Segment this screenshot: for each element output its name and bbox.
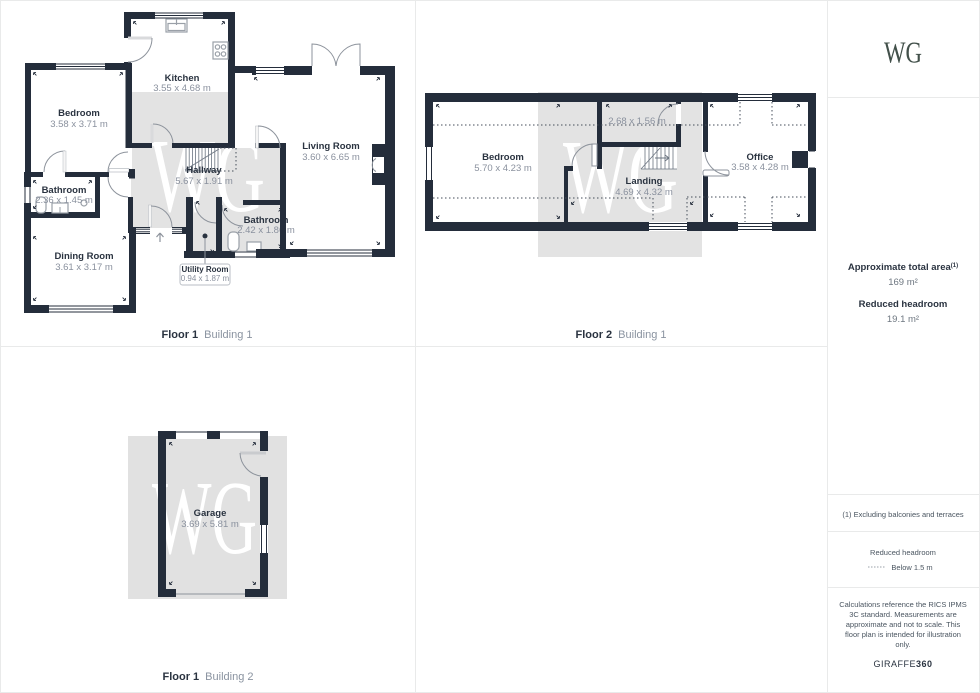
svg-text:Utility Room: Utility Room (181, 265, 228, 274)
svg-text:Floor 2Building 1: Floor 2Building 1 (576, 329, 667, 341)
svg-text:Hallway: Hallway (186, 165, 222, 176)
svg-text:Below 1.5 m: Below 1.5 m (891, 563, 932, 572)
svg-text:floor plan is intended for ill: floor plan is intended for illustration (845, 630, 961, 639)
svg-text:Living Room: Living Room (302, 141, 360, 152)
svg-text:3C standard. Measurements are: 3C standard. Measurements are (849, 610, 957, 619)
svg-text:only.: only. (895, 640, 910, 649)
svg-text:Floor 1Building 2: Floor 1Building 2 (163, 671, 254, 683)
svg-text:19.1 m²: 19.1 m² (887, 314, 919, 325)
svg-text:Approximate total area(1): Approximate total area(1) (848, 262, 958, 273)
svg-text:Calculations reference the RIC: Calculations reference the RICS IPMS (839, 600, 967, 609)
svg-text:GIRAFFE360: GIRAFFE360 (873, 659, 932, 669)
svg-text:2.42 x 1.86 m: 2.42 x 1.86 m (237, 225, 295, 236)
svg-text:3.58 x 3.71 m: 3.58 x 3.71 m (50, 119, 108, 130)
svg-text:3.60 x 6.65 m: 3.60 x 6.65 m (302, 152, 360, 163)
svg-text:5.67 x 1.91 m: 5.67 x 1.91 m (175, 176, 233, 187)
svg-text:WG: WG (884, 35, 922, 70)
svg-text:Bedroom: Bedroom (482, 152, 524, 163)
svg-text:Bedroom: Bedroom (58, 108, 100, 119)
svg-text:3.69 x 5.81 m: 3.69 x 5.81 m (181, 519, 239, 530)
svg-text:3.58 x 4.28 m: 3.58 x 4.28 m (731, 162, 789, 173)
svg-text:3.55 x 4.68 m: 3.55 x 4.68 m (153, 83, 211, 94)
svg-text:2.36 x 1.45 m: 2.36 x 1.45 m (35, 195, 93, 206)
svg-text:169 m²: 169 m² (888, 277, 918, 288)
svg-text:Floor 1Building 1: Floor 1Building 1 (162, 329, 253, 341)
svg-text:3.61 x 3.17 m: 3.61 x 3.17 m (55, 262, 113, 273)
svg-text:4.69 x 4.32 m: 4.69 x 4.32 m (615, 187, 673, 198)
svg-text:5.70 x 4.23 m: 5.70 x 4.23 m (474, 163, 532, 174)
svg-text:Garage: Garage (194, 508, 227, 519)
svg-text:Dining Room: Dining Room (54, 251, 113, 262)
svg-text:Reduced headroom: Reduced headroom (859, 299, 948, 310)
svg-text:Reduced headroom: Reduced headroom (870, 548, 936, 557)
svg-text:0.94 x 1.87 m: 0.94 x 1.87 m (181, 274, 230, 283)
svg-text:approximate and not to scale.: approximate and not to scale. This (846, 620, 961, 629)
svg-text:Landing: Landing (626, 176, 663, 187)
svg-text:(1) Excluding balconies and te: (1) Excluding balconies and terraces (842, 510, 964, 519)
